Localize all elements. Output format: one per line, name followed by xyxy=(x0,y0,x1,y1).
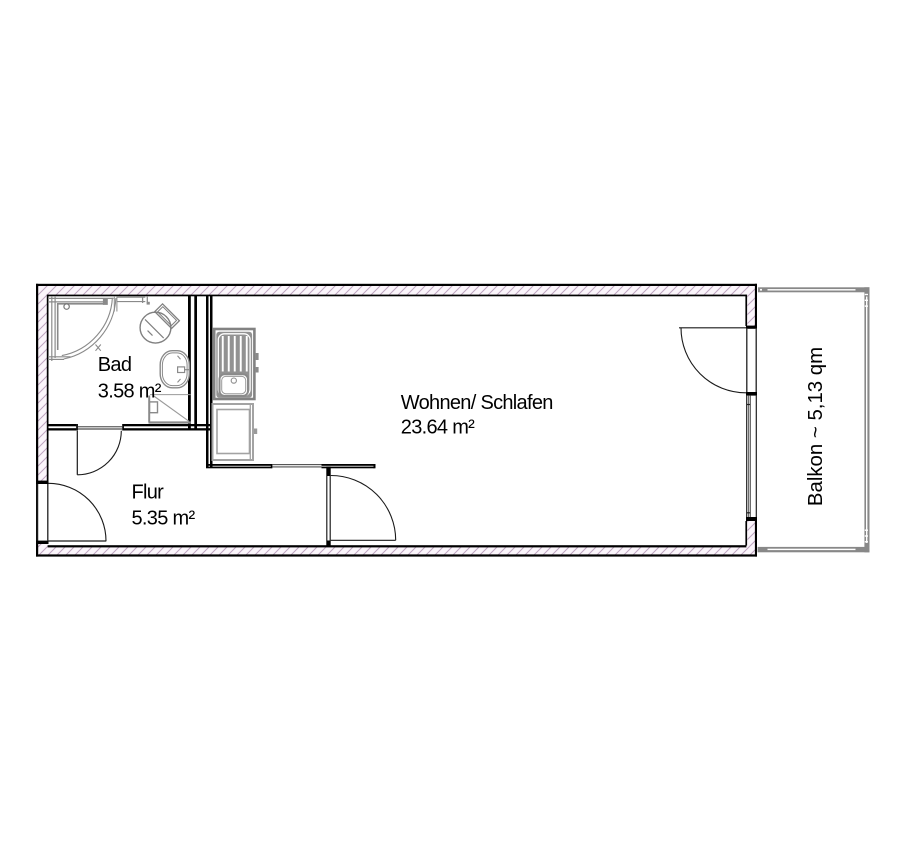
svg-text:23.64 m²: 23.64 m² xyxy=(401,417,475,439)
svg-text:Bad: Bad xyxy=(98,354,132,376)
svg-text:5.35 m²: 5.35 m² xyxy=(132,507,196,529)
svg-text:Balkon ~ 5,13 qm: Balkon ~ 5,13 qm xyxy=(805,347,827,506)
svg-text:Flur: Flur xyxy=(132,482,165,504)
svg-text:3.58 m²: 3.58 m² xyxy=(98,380,162,402)
svg-text:Wohnen/ Schlafen: Wohnen/ Schlafen xyxy=(401,392,553,414)
